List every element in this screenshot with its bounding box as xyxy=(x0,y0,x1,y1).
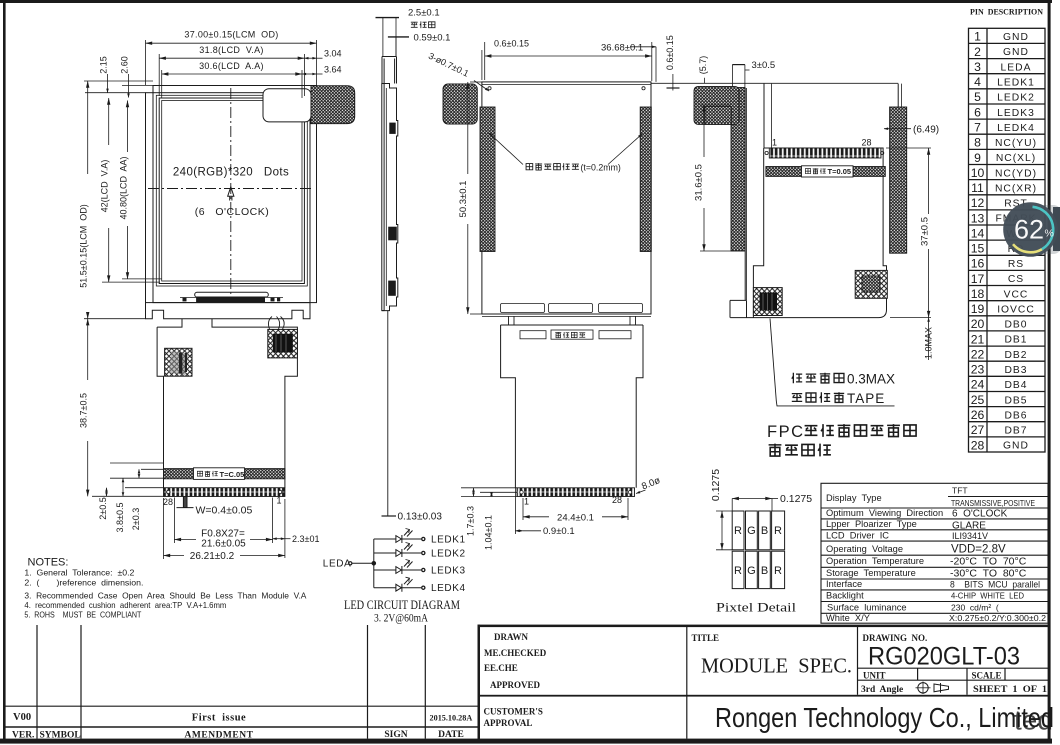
svg-text:9: 9 xyxy=(974,151,981,165)
svg-text:15: 15 xyxy=(971,242,985,256)
svg-text:VCC: VCC xyxy=(1004,289,1029,300)
svg-text:3: 3 xyxy=(974,60,981,74)
svg-text:LEDK2: LEDK2 xyxy=(997,93,1035,104)
svg-text:31.8(LCD V.A): 31.8(LCD V.A) xyxy=(199,45,263,55)
svg-text:5. ROHS MUST BE COMPLIAN: 5. ROHS MUST BE COMPLIANT xyxy=(24,610,142,620)
svg-text:V00: V00 xyxy=(13,712,31,723)
svg-text:PIN DESCRIPTION: PIN DESCRIPTION xyxy=(970,7,1044,17)
svg-text:DB7: DB7 xyxy=(1004,426,1027,437)
svg-text:EE.CHE: EE.CHE xyxy=(484,663,518,673)
svg-text:Display Type: Display Type xyxy=(826,493,882,503)
svg-text:1.0MAX: 1.0MAX xyxy=(924,327,934,359)
svg-text:4-CHIP WHITE LED: 4-CHIP WHITE LED xyxy=(951,591,1024,601)
svg-text:Rongen Technology Co., Limited: Rongen Technology Co., Limited xyxy=(715,702,1054,733)
svg-text:2.3±01: 2.3±01 xyxy=(292,534,319,544)
svg-text:W=0.4±0.05: W=0.4±0.05 xyxy=(196,505,253,517)
svg-text:4. recommended cushion adhe: 4. recommended cushion adherent area:TP … xyxy=(24,600,226,610)
svg-text:LEDK3: LEDK3 xyxy=(997,108,1035,119)
svg-text:22: 22 xyxy=(971,348,985,362)
svg-text:16: 16 xyxy=(971,257,985,271)
svg-text:Surface luminance: Surface luminance xyxy=(827,603,907,613)
svg-text:LEDK2: LEDK2 xyxy=(431,548,466,559)
svg-text:Interface: Interface xyxy=(826,579,862,589)
svg-text:GND: GND xyxy=(1003,32,1029,43)
svg-text:36.68±0.1: 36.68±0.1 xyxy=(601,43,643,54)
svg-text:3.04: 3.04 xyxy=(324,49,342,59)
svg-text:0.3MAX: 0.3MAX xyxy=(847,372,895,387)
svg-text:DB3: DB3 xyxy=(1004,365,1027,376)
svg-text:2. ( )reference dimens: 2. ( )reference dimension. xyxy=(24,578,143,588)
svg-text:-30°C TO 80°C: -30°C TO 80°C xyxy=(950,568,1027,580)
svg-text:TRANSMISSIVE,POSITIVE: TRANSMISSIVE,POSITIVE xyxy=(951,498,1035,508)
svg-text:NC(YD): NC(YD) xyxy=(995,168,1037,179)
svg-text:1: 1 xyxy=(974,30,981,44)
svg-text:17: 17 xyxy=(971,272,985,286)
svg-text:3±0.5: 3±0.5 xyxy=(752,60,776,71)
svg-text:SCALE: SCALE xyxy=(972,671,1002,681)
svg-text:0.13±0.03: 0.13±0.03 xyxy=(398,512,443,523)
svg-text:38.7±0.5: 38.7±0.5 xyxy=(79,393,89,428)
svg-text:VER.: VER. xyxy=(12,731,34,741)
svg-text:Pixtel Detail: Pixtel Detail xyxy=(716,601,797,615)
svg-text:B: B xyxy=(761,565,768,577)
svg-text:%: % xyxy=(1045,228,1054,240)
svg-text:6 O'CLOCK: 6 O'CLOCK xyxy=(952,509,1008,520)
svg-text:GND: GND xyxy=(1003,47,1029,58)
svg-text:2.15: 2.15 xyxy=(99,56,109,74)
svg-text:26.21±0.2: 26.21±0.2 xyxy=(190,551,235,562)
svg-text:3.64: 3.64 xyxy=(324,64,342,74)
svg-text:0.1275: 0.1275 xyxy=(780,493,812,505)
svg-text:ILI9341V: ILI9341V xyxy=(952,531,988,541)
svg-text:APPROVED: APPROVED xyxy=(490,680,540,690)
svg-text:(5.7): (5.7) xyxy=(698,56,708,75)
svg-text:21.6±0.05: 21.6±0.05 xyxy=(201,539,246,550)
svg-text:1.04±0.1: 1.04±0.1 xyxy=(484,515,494,550)
svg-text:12: 12 xyxy=(971,196,985,210)
svg-text:10: 10 xyxy=(971,166,985,180)
svg-text:LEDA: LEDA xyxy=(323,559,352,570)
svg-text:27: 27 xyxy=(971,423,985,437)
svg-text:DB0: DB0 xyxy=(1004,320,1027,331)
svg-text:0.6±0.15: 0.6±0.15 xyxy=(665,35,675,70)
svg-text:R: R xyxy=(734,525,742,537)
svg-text:FPC: FPC xyxy=(767,423,805,441)
svg-text:0.59±0.1: 0.59±0.1 xyxy=(414,33,451,44)
svg-text:TITLE: TITLE xyxy=(692,633,720,643)
svg-text:18: 18 xyxy=(971,287,985,301)
svg-text:UNIT: UNIT xyxy=(863,671,886,681)
svg-text:3.8±0.5: 3.8±0.5 xyxy=(115,503,125,533)
svg-text:NC(XR): NC(XR) xyxy=(995,183,1037,194)
svg-text:SIGN: SIGN xyxy=(384,730,407,740)
svg-text:ted: ted xyxy=(1014,705,1053,736)
svg-text:APPROVAL: APPROVAL xyxy=(484,718,533,728)
svg-text:White X/Y: White X/Y xyxy=(826,613,870,623)
svg-text:DB2: DB2 xyxy=(1004,350,1027,361)
svg-text:DB1: DB1 xyxy=(1004,335,1027,346)
svg-text:DRAWN: DRAWN xyxy=(494,632,529,642)
svg-text:0.1275: 0.1275 xyxy=(710,469,722,501)
svg-text:LEDK1: LEDK1 xyxy=(431,534,466,545)
svg-text:0.9±0.1: 0.9±0.1 xyxy=(543,526,575,537)
svg-text:23: 23 xyxy=(971,363,985,377)
svg-text:RS: RS xyxy=(1008,259,1024,270)
svg-text:62: 62 xyxy=(1014,215,1044,245)
svg-text:11: 11 xyxy=(971,181,984,195)
svg-text:B: B xyxy=(761,525,768,537)
svg-text:G: G xyxy=(747,525,756,537)
svg-text:3. Recommended Case Open A: 3. Recommended Case Open Area Should Be … xyxy=(24,591,306,601)
svg-text:DB6: DB6 xyxy=(1004,410,1027,421)
svg-text:50.3±0.1: 50.3±0.1 xyxy=(458,181,469,218)
svg-text:20: 20 xyxy=(971,317,985,331)
svg-text:13: 13 xyxy=(971,211,985,225)
svg-text:AMENDMENT: AMENDMENT xyxy=(185,731,254,741)
svg-text:1: 1 xyxy=(524,497,529,507)
svg-text:Backlight: Backlight xyxy=(826,591,864,601)
svg-text:RG020GLT-03: RG020GLT-03 xyxy=(868,643,1020,671)
svg-text:LCD Driver IC: LCD Driver IC xyxy=(826,530,889,540)
svg-text:DATE: DATE xyxy=(438,730,464,740)
svg-text:Optimum Viewing Direction: Optimum Viewing Direction xyxy=(826,508,943,518)
svg-text:26: 26 xyxy=(971,408,985,422)
svg-text:28: 28 xyxy=(612,495,622,505)
svg-text:1.7±0.3: 1.7±0.3 xyxy=(466,506,476,536)
svg-text:TAPE: TAPE xyxy=(847,391,885,406)
svg-text:1. General Tolerance: ±0.2: 1. General Tolerance: ±0.2 xyxy=(24,568,134,578)
svg-text:T=0.05: T=0.05 xyxy=(828,167,852,176)
svg-text:24: 24 xyxy=(971,378,985,392)
svg-text:230 cd/m² (: 230 cd/m² ( xyxy=(951,603,999,613)
svg-text:(t=0.2mm): (t=0.2mm) xyxy=(581,162,621,172)
svg-text:28: 28 xyxy=(862,138,872,148)
svg-text:Storage Temperature: Storage Temperature xyxy=(826,568,916,578)
svg-text:NC(YU): NC(YU) xyxy=(995,138,1037,149)
svg-text:NC(XL): NC(XL) xyxy=(996,153,1036,164)
svg-text:LEDK4: LEDK4 xyxy=(997,123,1035,134)
svg-text:1: 1 xyxy=(772,138,777,148)
svg-text:CS: CS xyxy=(1008,274,1024,285)
svg-text:7: 7 xyxy=(974,121,981,135)
svg-text:DB4: DB4 xyxy=(1004,380,1027,391)
svg-text:2015.10.28A: 2015.10.28A xyxy=(430,714,473,723)
svg-text:24.4±0.1: 24.4±0.1 xyxy=(557,513,594,524)
svg-text:TFT: TFT xyxy=(952,486,968,496)
svg-text:28: 28 xyxy=(163,497,173,507)
svg-text:ME.CHECKED: ME.CHECKED xyxy=(484,648,547,658)
svg-text:2: 2 xyxy=(974,45,981,59)
svg-text:14: 14 xyxy=(971,226,985,240)
svg-text:21: 21 xyxy=(971,332,985,346)
svg-text:LEDK4: LEDK4 xyxy=(431,583,466,594)
svg-text:8: 8 xyxy=(974,136,981,150)
svg-text:5: 5 xyxy=(974,90,981,104)
svg-text:DB5: DB5 xyxy=(1004,395,1027,406)
svg-text:SYMBOL: SYMBOL xyxy=(40,731,81,741)
svg-text:LEDK3: LEDK3 xyxy=(431,565,466,576)
svg-text:2.60: 2.60 xyxy=(120,56,130,74)
svg-text:1: 1 xyxy=(277,496,282,506)
svg-text:-20°C TO 70°C: -20°C TO 70°C xyxy=(950,556,1027,568)
svg-text:2±0.3: 2±0.3 xyxy=(131,508,141,530)
svg-text:42(LCD V.A): 42(LCD V.A) xyxy=(100,160,110,213)
svg-text:IOVCC: IOVCC xyxy=(997,305,1035,316)
svg-text:X:0.275±0.2/Y:0.300±0.2: X:0.275±0.2/Y:0.300±0.2 xyxy=(949,613,1046,623)
svg-text:25: 25 xyxy=(971,393,985,407)
svg-text:19: 19 xyxy=(971,302,985,316)
svg-text:8 BITS MCU parallel: 8 BITS MCU parallel xyxy=(950,579,1040,590)
svg-text:CUSTOMER'S: CUSTOMER'S xyxy=(484,707,543,717)
svg-text:0.6±0.15: 0.6±0.15 xyxy=(494,39,529,49)
svg-text:Lpper Ploarizer Type: Lpper Ploarizer Type xyxy=(826,519,917,529)
svg-text:(6.49): (6.49) xyxy=(913,125,939,136)
svg-text:3rd Angle: 3rd Angle xyxy=(861,685,903,695)
svg-text:VDD=2.8V: VDD=2.8V xyxy=(951,544,1006,556)
svg-text:DRAWING NO.: DRAWING NO. xyxy=(863,633,928,643)
svg-text:Operation Temperature: Operation Temperature xyxy=(826,556,924,566)
svg-text:30.6(LCD A.A): 30.6(LCD A.A) xyxy=(199,61,264,71)
svg-text:2±0.5: 2±0.5 xyxy=(98,497,108,519)
svg-text:6: 6 xyxy=(974,105,981,119)
svg-text:SHEET 1 OF 1: SHEET 1 OF 1 xyxy=(973,685,1047,695)
svg-text:LEDA: LEDA xyxy=(1001,62,1032,73)
svg-text:(6 O'CLOCK): (6 O'CLOCK) xyxy=(195,206,269,218)
svg-text:R: R xyxy=(774,565,782,577)
svg-text:240(RGB)*320 Dots: 240(RGB)*320 Dots xyxy=(173,167,289,179)
svg-text:First issue: First issue xyxy=(192,713,246,724)
svg-text:G: G xyxy=(747,565,756,577)
svg-text:Operating Voltage: Operating Voltage xyxy=(826,544,903,554)
svg-text:LEDK1: LEDK1 xyxy=(997,78,1035,89)
svg-text:37.00±0.15(LCM OD): 37.00±0.15(LCM OD) xyxy=(184,30,278,40)
svg-text:31.6±0.5: 31.6±0.5 xyxy=(694,164,705,201)
svg-text:37±0.5: 37±0.5 xyxy=(920,217,931,246)
svg-text:4: 4 xyxy=(974,75,981,89)
svg-text:28: 28 xyxy=(971,438,985,452)
svg-text:GLARE: GLARE xyxy=(952,520,986,531)
svg-text:R: R xyxy=(734,565,742,577)
svg-text:GND: GND xyxy=(1003,441,1029,452)
svg-text:2.5±0.1: 2.5±0.1 xyxy=(408,8,440,19)
svg-text:R: R xyxy=(774,525,782,537)
svg-text:MODULE SPEC.: MODULE SPEC. xyxy=(701,654,852,678)
svg-text:51.5±0.15(LCM OD): 51.5±0.15(LCM OD) xyxy=(79,204,89,287)
svg-text:LED CIRCUIT DIAGRAM: LED CIRCUIT DIAGRAM xyxy=(344,598,460,612)
svg-text:3. 2V@60mA: 3. 2V@60mA xyxy=(374,613,429,625)
svg-text:T=C.05: T=C.05 xyxy=(220,470,245,479)
svg-text:40.80(LCD AA): 40.80(LCD AA) xyxy=(119,156,129,219)
